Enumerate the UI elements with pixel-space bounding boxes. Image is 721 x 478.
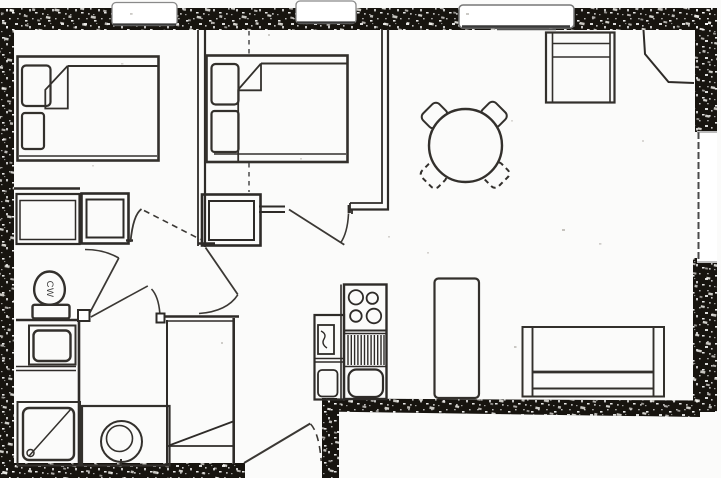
svg-text:CW: CW xyxy=(44,281,55,298)
